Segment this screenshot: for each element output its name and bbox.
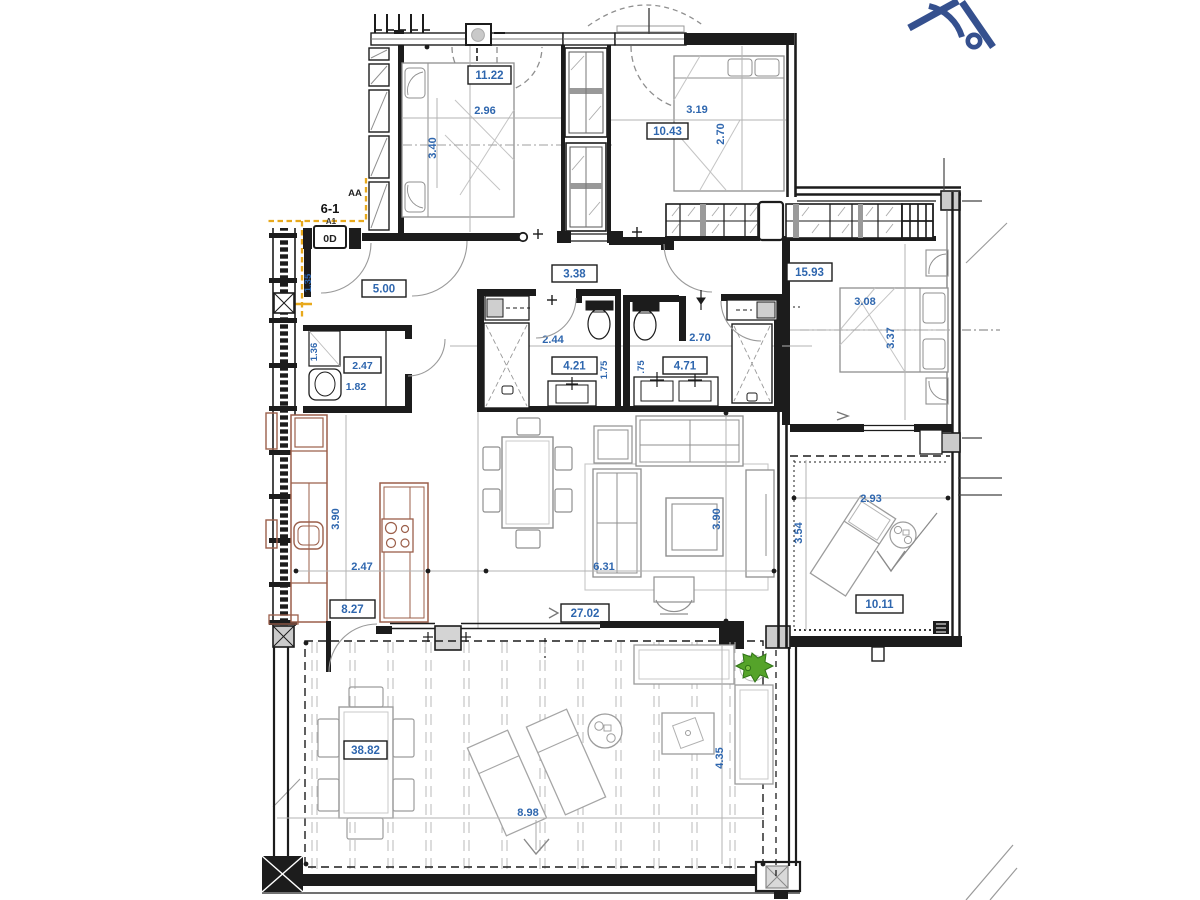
- svg-text:3.08: 3.08: [854, 296, 875, 308]
- svg-text:10.43: 10.43: [653, 126, 682, 138]
- svg-text:2.44: 2.44: [542, 334, 564, 346]
- svg-text:3.54: 3.54: [793, 521, 805, 543]
- svg-text:1.36: 1.36: [309, 343, 320, 362]
- svg-text:2.96: 2.96: [474, 105, 495, 117]
- svg-text:2.70: 2.70: [715, 123, 727, 144]
- svg-text:2.47: 2.47: [352, 360, 373, 372]
- svg-text:4.71: 4.71: [674, 361, 697, 373]
- svg-text:2.70: 2.70: [689, 332, 710, 344]
- svg-text:8.27: 8.27: [341, 604, 363, 616]
- svg-text:11.22: 11.22: [475, 70, 503, 82]
- svg-text:6.31: 6.31: [593, 561, 614, 573]
- svg-text:10.11: 10.11: [865, 599, 894, 611]
- svg-text:4.35: 4.35: [714, 747, 726, 768]
- svg-text:3.90: 3.90: [711, 508, 723, 529]
- svg-text:AA: AA: [348, 188, 362, 199]
- svg-text:.75: .75: [636, 360, 647, 374]
- svg-text:3.19: 3.19: [686, 104, 707, 116]
- svg-text:27.02: 27.02: [571, 608, 600, 620]
- svg-text:2.93: 2.93: [860, 493, 881, 505]
- svg-text:3.37: 3.37: [885, 327, 897, 348]
- svg-text:15.93: 15.93: [795, 267, 824, 279]
- svg-text:8.98: 8.98: [517, 807, 538, 819]
- svg-text:1.75: 1.75: [599, 360, 610, 379]
- svg-text:3.90: 3.90: [330, 508, 342, 529]
- svg-text:1.82: 1.82: [346, 381, 367, 393]
- svg-text:0D: 0D: [323, 233, 337, 245]
- svg-text:5.00: 5.00: [373, 284, 395, 296]
- svg-text:38.82: 38.82: [351, 745, 380, 757]
- svg-text:6-1: 6-1: [321, 201, 340, 216]
- svg-text:3.40: 3.40: [427, 137, 439, 158]
- svg-text:1.35: 1.35: [303, 273, 314, 292]
- svg-text:A1: A1: [326, 217, 337, 226]
- svg-text:3.38: 3.38: [563, 269, 586, 281]
- svg-text:4.21: 4.21: [563, 361, 586, 373]
